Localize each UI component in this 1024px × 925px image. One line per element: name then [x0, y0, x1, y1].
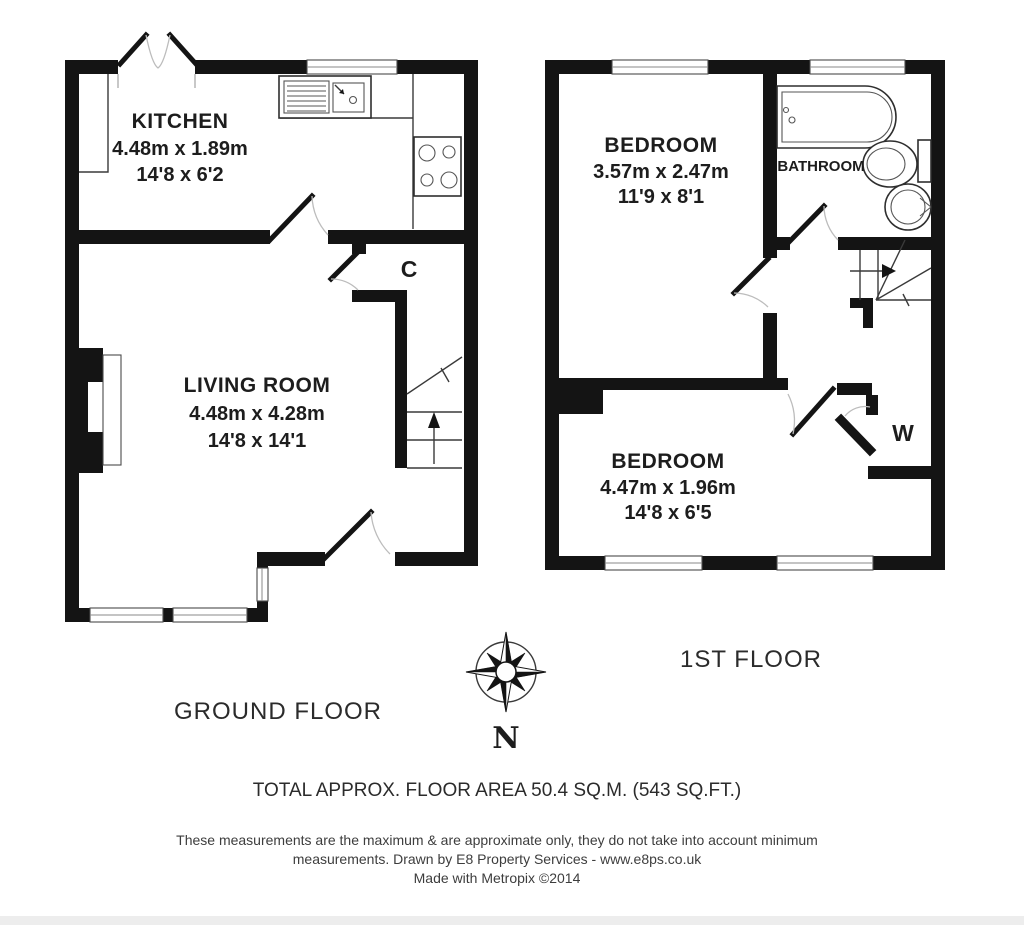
patio-door	[325, 512, 390, 558]
living-room-label: LIVING ROOM 4.48m x 4.28m 14'8 x 14'1	[184, 374, 331, 452]
living-room-dim-metric: 4.48m x 4.28m	[189, 403, 325, 425]
disclaimer-line2: measurements. Drawn by E8 Property Servi…	[293, 851, 702, 867]
ground-floor-plan: KITCHEN 4.48m x 1.89m 14'8 x 6'2 LIVING …	[65, 35, 478, 725]
bedroom-back-window-right	[777, 556, 873, 570]
toilet-icon	[863, 140, 931, 187]
bathtub-icon	[777, 86, 896, 148]
bedroom-front-dim-metric: 3.57m x 2.47m	[593, 161, 729, 183]
first-floor-title: 1ST FLOOR	[680, 646, 822, 673]
kitchen-sink-icon	[279, 76, 371, 118]
hob-icon	[414, 137, 461, 196]
wash-basin-icon	[885, 184, 931, 230]
wardrobe-label: W	[892, 420, 914, 446]
bathroom-door	[790, 206, 838, 241]
bedroom-front-label: BEDROOM 3.57m x 2.47m 11'9 x 8'1	[593, 134, 729, 208]
fireplace	[65, 348, 121, 473]
kitchen-name: KITCHEN	[132, 110, 229, 133]
ground-floor-title: GROUND FLOOR	[174, 698, 382, 725]
bedroom-back-window-left	[605, 556, 702, 570]
kitchen-dim-metric: 4.48m x 1.89m	[112, 138, 248, 160]
bedroom-front-dim-imperial: 11'9 x 8'1	[618, 186, 704, 208]
kitchen-window	[307, 60, 397, 74]
compass-rose-icon: N	[466, 632, 546, 756]
bedroom-front-name: BEDROOM	[604, 134, 717, 157]
stairs-ground-floor	[407, 357, 462, 468]
bedroom-front-window	[612, 60, 708, 74]
bedroom-back-name: BEDROOM	[611, 450, 724, 473]
bottom-strip	[0, 916, 1024, 925]
front-door	[118, 35, 196, 88]
floorplan-canvas: KITCHEN 4.48m x 1.89m 14'8 x 6'2 LIVING …	[0, 0, 1024, 925]
kitchen-dim-imperial: 14'8 x 6'2	[136, 164, 223, 186]
floorplan-page: KITCHEN 4.48m x 1.89m 14'8 x 6'2 LIVING …	[0, 0, 1024, 925]
bathroom-label: BATHROOM	[777, 158, 864, 175]
bedroom-front-door	[734, 259, 768, 307]
first-floor-plan: BEDROOM 3.57m x 2.47m 11'9 x 8'1 BATHROO…	[545, 60, 945, 673]
living-room-window-left	[90, 608, 163, 622]
bedroom-back-door	[788, 389, 833, 434]
living-room-name: LIVING ROOM	[184, 374, 331, 397]
wardrobe-door	[841, 407, 870, 450]
kitchen-label: KITCHEN 4.48m x 1.89m 14'8 x 6'2	[112, 110, 248, 186]
credit-label: Made with Metropix ©2014	[414, 870, 581, 886]
bathroom-window	[810, 60, 905, 74]
living-room-window-right	[173, 608, 247, 622]
cupboard-label: C	[401, 256, 418, 282]
total-area-label: TOTAL APPROX. FLOOR AREA 50.4 SQ.M. (543…	[253, 780, 742, 801]
footer: TOTAL APPROX. FLOOR AREA 50.4 SQ.M. (543…	[176, 780, 818, 886]
bedroom-back-label: BEDROOM 4.47m x 1.96m 14'8 x 6'5	[600, 450, 736, 524]
north-label: N	[492, 721, 519, 756]
living-room-side-window	[257, 568, 268, 601]
bedroom-back-dim-metric: 4.47m x 1.96m	[600, 477, 736, 499]
disclaimer-line1: These measurements are the maximum & are…	[176, 832, 818, 848]
living-room-dim-imperial: 14'8 x 14'1	[208, 430, 307, 452]
cupboard-door	[331, 252, 358, 290]
bedroom-back-dim-imperial: 14'8 x 6'5	[624, 502, 711, 524]
kitchen-door	[270, 196, 328, 240]
